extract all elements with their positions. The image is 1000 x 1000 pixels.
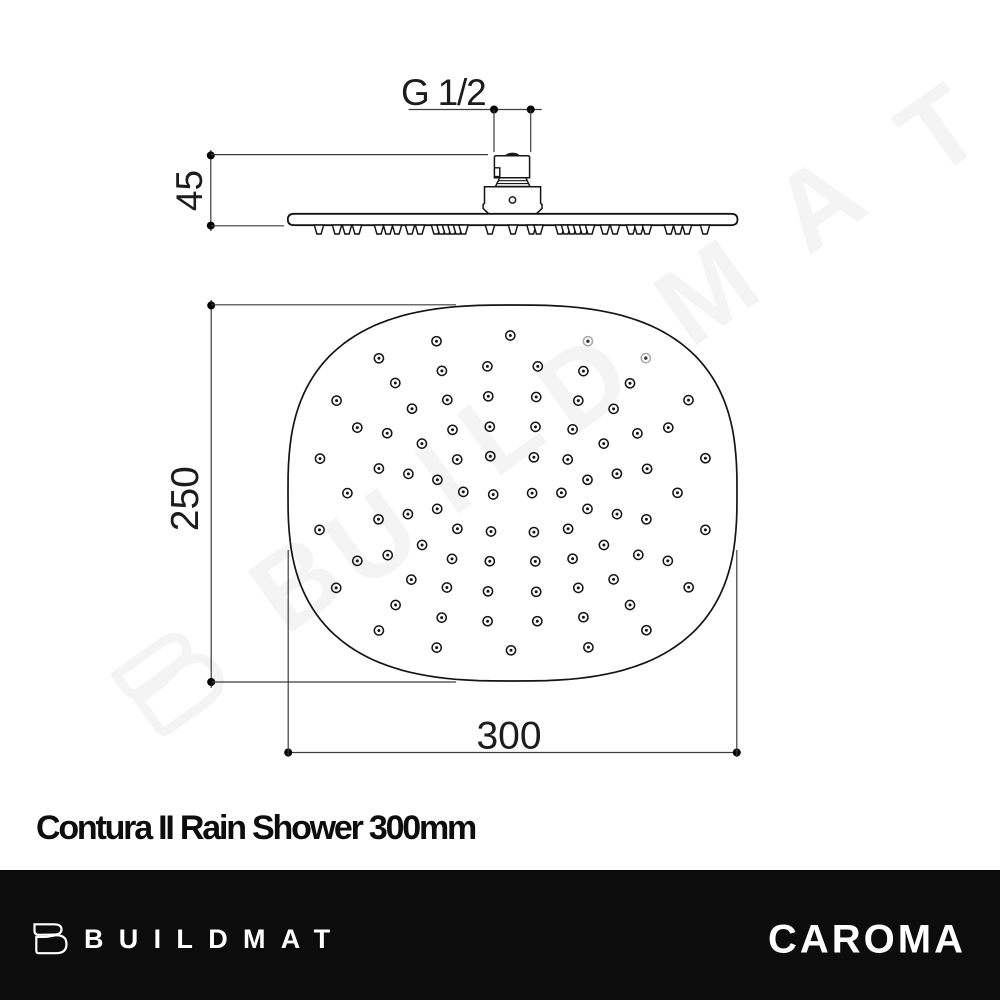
svg-text:250: 250 [164,466,207,531]
svg-text:45: 45 [169,170,210,211]
svg-text:CAROMA: CAROMA [768,918,966,962]
svg-text:BUILDMAT: BUILDMAT [84,924,345,954]
svg-text:Contura II Rain Shower 300mm: Contura II Rain Shower 300mm [36,809,476,847]
svg-text:300: 300 [476,715,541,758]
svg-text:G 1/2: G 1/2 [401,72,486,113]
